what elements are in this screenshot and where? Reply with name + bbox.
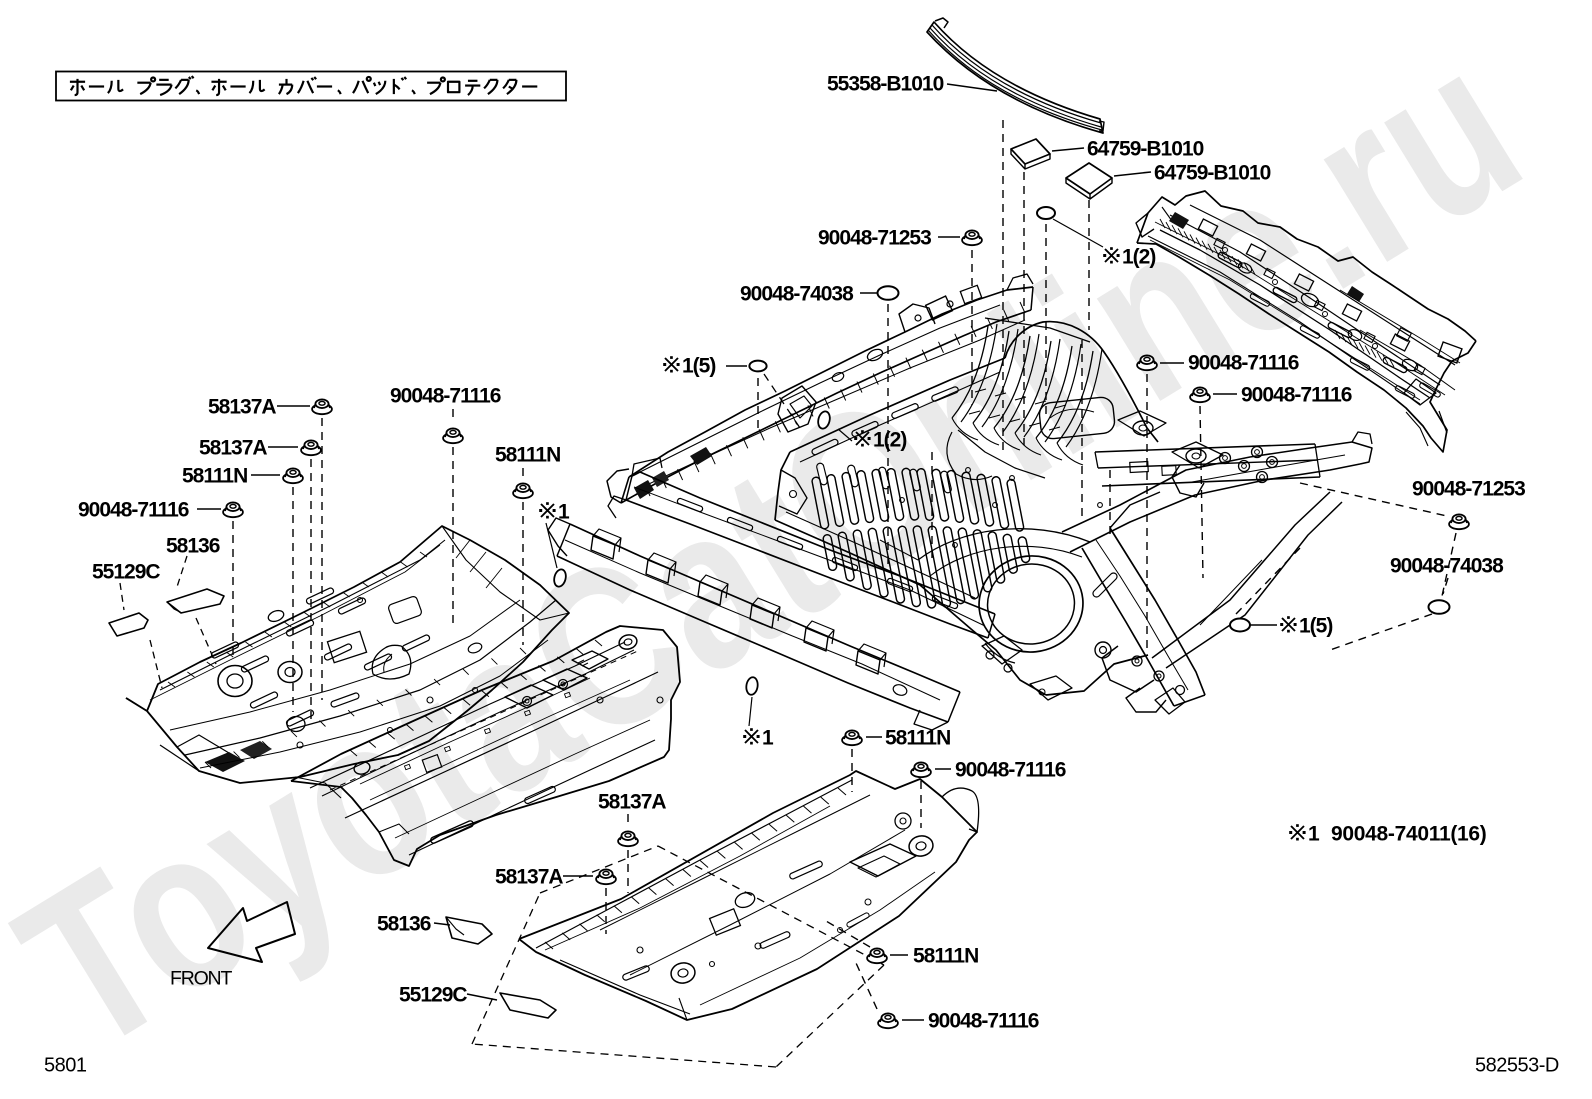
svg-text:55129C: 55129C [92, 561, 160, 584]
svg-text:55129C: 55129C [399, 984, 467, 1007]
svg-text:58111N: 58111N [495, 444, 560, 467]
svg-text:58136: 58136 [166, 535, 220, 558]
svg-text:1(5): 1(5) [682, 355, 715, 378]
svg-text:FRONT: FRONT [170, 968, 232, 990]
svg-text:64759-B1010: 64759-B1010 [1154, 162, 1271, 185]
svg-text:90048-71253: 90048-71253 [818, 227, 931, 250]
svg-text:58111N: 58111N [885, 727, 950, 750]
svg-text:90048-74038: 90048-74038 [740, 283, 854, 306]
svg-text:90048-71116: 90048-71116 [955, 759, 1066, 782]
svg-text:1(2): 1(2) [873, 429, 906, 452]
svg-text:5801: 5801 [44, 1055, 87, 1077]
svg-text:58137A: 58137A [208, 396, 276, 419]
svg-text:90048-74011(16): 90048-74011(16) [1331, 823, 1486, 846]
svg-text:1: 1 [1308, 823, 1320, 846]
svg-text:1: 1 [558, 501, 570, 524]
svg-text:58111N: 58111N [182, 465, 247, 488]
svg-text:55358-B1010: 55358-B1010 [827, 73, 944, 96]
svg-text:58137A: 58137A [495, 866, 563, 889]
svg-text:1: 1 [762, 727, 774, 750]
svg-text:58111N: 58111N [913, 945, 978, 968]
svg-text:64759-B1010: 64759-B1010 [1087, 138, 1204, 161]
svg-text:90048-74038: 90048-74038 [1390, 555, 1504, 578]
svg-text:90048-71116: 90048-71116 [1188, 352, 1299, 375]
svg-text:90048-71253: 90048-71253 [1412, 478, 1525, 501]
svg-text:58137A: 58137A [598, 791, 666, 814]
svg-text:1(2): 1(2) [1122, 246, 1155, 269]
svg-text:90048-71116: 90048-71116 [1241, 384, 1352, 407]
svg-text:1(5): 1(5) [1299, 615, 1332, 638]
svg-text:90048-71116: 90048-71116 [78, 499, 189, 522]
svg-text:90048-71116: 90048-71116 [390, 385, 501, 408]
svg-text:58137A: 58137A [199, 437, 267, 460]
svg-text:90048-71116: 90048-71116 [928, 1010, 1039, 1033]
svg-text:582553-D: 582553-D [1475, 1055, 1559, 1077]
svg-text:58136: 58136 [377, 913, 431, 936]
